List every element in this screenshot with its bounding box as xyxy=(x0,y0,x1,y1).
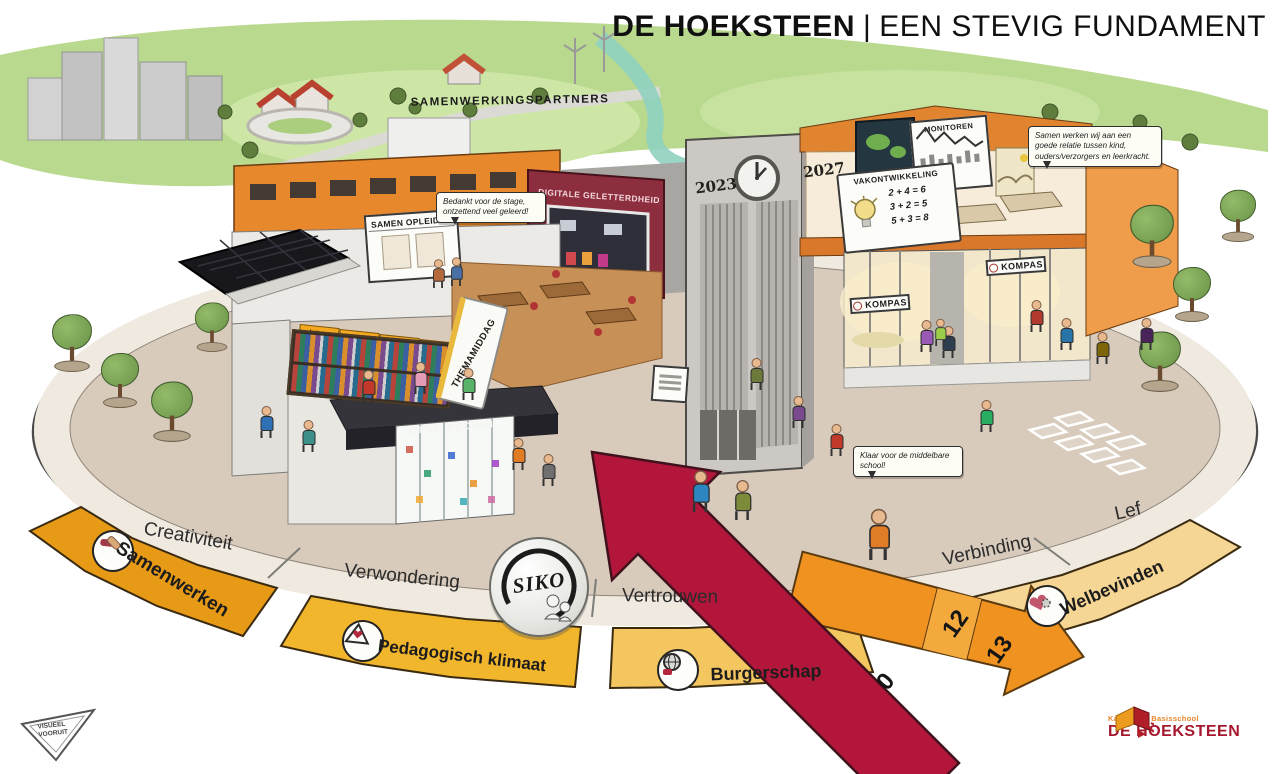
person-figure xyxy=(735,480,749,520)
person-figure xyxy=(935,319,944,346)
person-figure xyxy=(303,420,314,452)
person-figure xyxy=(831,424,842,456)
person-figure xyxy=(921,320,932,352)
person-figure xyxy=(1097,332,1108,364)
monitoring-chart xyxy=(911,117,987,169)
person-figure xyxy=(693,470,707,512)
person-figure xyxy=(463,368,474,400)
plaza-tree xyxy=(1173,267,1211,322)
person-figure xyxy=(261,406,272,438)
plaza-tree xyxy=(1220,190,1256,242)
person-figure xyxy=(451,257,461,286)
kompas-label: KOMPAS xyxy=(1001,259,1043,272)
lightbulb-sketch-icon xyxy=(847,194,885,237)
page-title-secondary: EEN STEVIG FUNDAMENT xyxy=(879,10,1266,43)
page-title: DE HOEKSTEEN|EEN STEVIG FUNDAMENT xyxy=(612,10,1266,44)
page-title-separator: | xyxy=(855,10,879,43)
ribbon-label-burgerschap: Burgerschap xyxy=(710,661,822,686)
siko-people-glyph xyxy=(545,595,571,621)
person-figure xyxy=(513,438,524,470)
person-figure xyxy=(869,509,887,560)
person-figure xyxy=(433,259,443,288)
person-figure xyxy=(981,400,992,432)
speech-bubble-ready: Klaar voor de middelbare school! xyxy=(853,446,963,477)
plaza-tree xyxy=(1130,205,1174,268)
compass-icon xyxy=(989,263,999,273)
person-figure xyxy=(1031,300,1042,332)
kompas-label: KOMPAS xyxy=(865,297,907,310)
plaza-tree xyxy=(151,382,193,443)
school-logo: Katholieke Basisschool DE HOEKSTEEN xyxy=(1108,714,1278,741)
person-figure xyxy=(363,370,374,402)
plaza-tree xyxy=(52,314,92,372)
person-figure xyxy=(543,454,554,486)
entrance-info-sign xyxy=(651,365,689,403)
page-title-primary: DE HOEKSTEEN xyxy=(612,10,855,43)
person-figure xyxy=(1141,318,1152,350)
vision-poster: DE HOEKSTEEN|EEN STEVIG FUNDAMENT SAMENW… xyxy=(0,0,1280,774)
vakontwikkeling-board: VAKONTWIKKELING 2 + 4 = 6 3 + 2 = 5 5 + … xyxy=(836,162,962,254)
math-sums: 2 + 4 = 6 3 + 2 = 5 5 + 3 = 8 xyxy=(888,181,954,229)
siko-badge: SIKO xyxy=(489,537,589,637)
globe-hands-icon xyxy=(657,649,699,691)
ring-label-vertrouwen: Vertrouwen xyxy=(622,585,718,609)
plaza-tree xyxy=(101,353,139,408)
compass-icon xyxy=(853,301,863,311)
poster-sketches xyxy=(369,231,457,271)
speech-bubble-parents: Samen werken wij aan een goede relatie t… xyxy=(1028,126,1162,167)
person-figure xyxy=(751,358,762,390)
speech-bubble-stage: Bedankt voor de stage, ontzettend veel g… xyxy=(436,192,546,223)
cornerstone-logo-icon xyxy=(1108,700,1154,742)
visueel-vooruit-logo: VISUEEL VOORUIT xyxy=(14,704,106,766)
person-figure xyxy=(1061,318,1072,350)
person-figure xyxy=(415,362,426,394)
plaza-tree xyxy=(195,303,229,353)
person-figure xyxy=(793,396,804,428)
